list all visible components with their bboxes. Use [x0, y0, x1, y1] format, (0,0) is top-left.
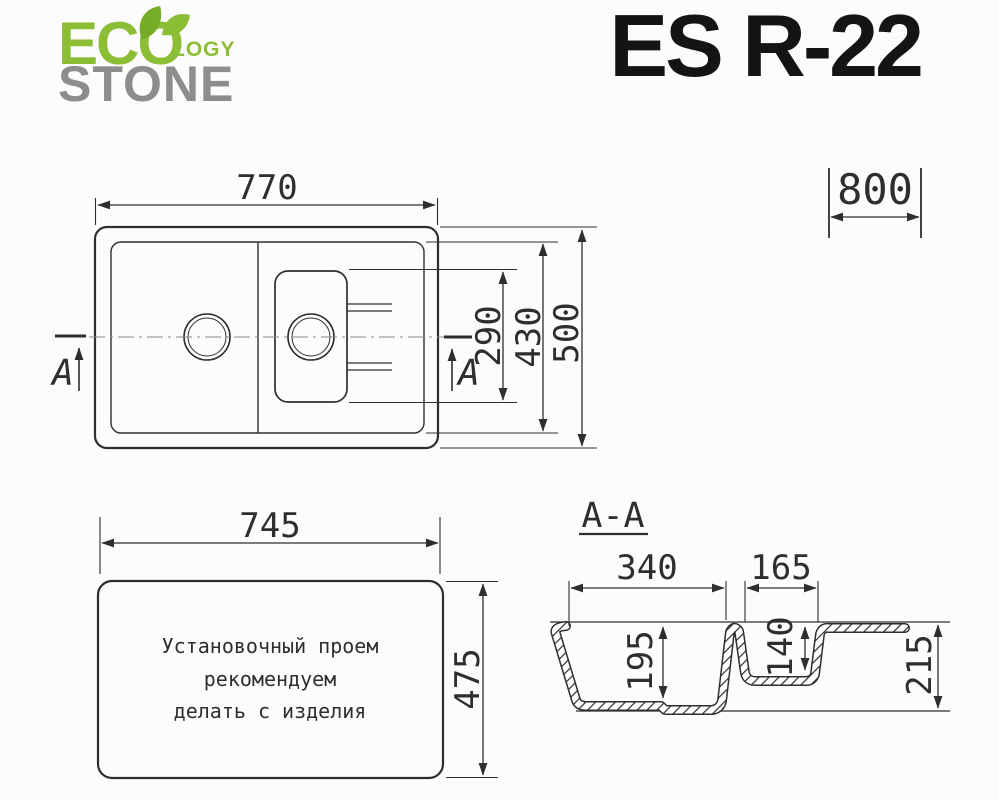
dim-big-bowl-depth-195: 195 — [621, 627, 663, 698]
note-line: Установочный проем — [162, 634, 379, 658]
dim-width-770: 770 — [96, 168, 438, 225]
dim-opening-475: 475 — [446, 582, 498, 778]
spec-sheet: ECO LOGY STONE ES R-22 — [0, 0, 999, 800]
dim-label: 165 — [750, 548, 811, 588]
section-title: A-A — [581, 496, 644, 536]
dim-label: 475 — [448, 648, 488, 709]
dim-label: 800 — [837, 165, 913, 214]
dim-small-bowl-depth-140: 140 — [761, 616, 805, 677]
dim-small-bowl-290: 290 — [349, 270, 517, 403]
section-aa-view: A-A 340 165 — [550, 496, 950, 711]
top-view: 770 800 290 430 — [50, 165, 921, 448]
dim-label: 195 — [621, 630, 661, 691]
dim-cabinet-800: 800 — [829, 165, 921, 238]
dim-small-bowl-165: 165 — [745, 548, 818, 622]
install-opening-view: 745 475 Установочный проем рекомендуем д… — [98, 506, 498, 778]
dim-label: 770 — [236, 168, 297, 208]
dim-label: 500 — [547, 302, 587, 363]
dim-opening-745: 745 — [100, 506, 440, 574]
dim-label: 215 — [900, 634, 940, 695]
technical-drawing: 770 800 290 430 — [0, 0, 999, 800]
note-line: делать с изделия — [174, 699, 367, 723]
dim-label: 340 — [616, 548, 677, 588]
dim-label: 430 — [509, 306, 549, 367]
install-note: Установочный проем рекомендуем делать с … — [162, 634, 379, 723]
section-marker-left: A — [50, 336, 86, 394]
dim-big-bowl-340: 340 — [569, 548, 726, 626]
section-letter: A — [50, 353, 74, 394]
dim-label: 140 — [761, 616, 801, 677]
section-letter: A — [456, 353, 480, 394]
dim-total-depth-215: 215 — [900, 625, 940, 708]
dim-label: 745 — [239, 506, 300, 546]
note-line: рекомендуем — [204, 667, 336, 691]
